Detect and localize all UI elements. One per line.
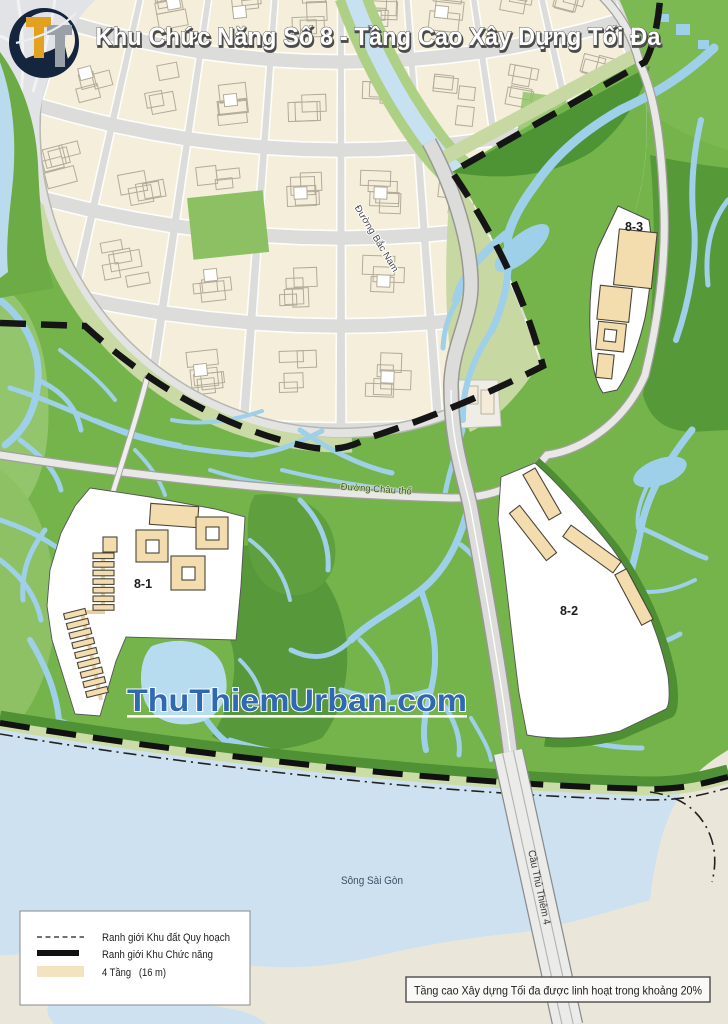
- svg-text:4 Tầng (16 m): 4 Tầng (16 m): [102, 967, 166, 979]
- svg-text:Ranh giới Khu Chức năng: Ranh giới Khu Chức năng: [102, 949, 213, 961]
- svg-text:ThuThiemUrban.com: ThuThiemUrban.com: [127, 682, 467, 718]
- svg-text:8-3: 8-3: [625, 220, 643, 234]
- svg-text:Sông Sài Gòn: Sông Sài Gòn: [341, 875, 403, 887]
- svg-text:8-1: 8-1: [134, 577, 152, 591]
- svg-text:Ranh giới Khu đất Quy hoạch: Ranh giới Khu đất Quy hoạch: [102, 932, 230, 944]
- svg-text:8-2: 8-2: [560, 604, 578, 618]
- svg-text:Khu Chức Năng Số 8 - Tầng Cao: Khu Chức Năng Số 8 - Tầng Cao Xây Dựng T…: [96, 23, 662, 51]
- svg-text:Tầng cao Xây dựng Tối đa được: Tầng cao Xây dựng Tối đa được linh hoạt …: [414, 984, 702, 998]
